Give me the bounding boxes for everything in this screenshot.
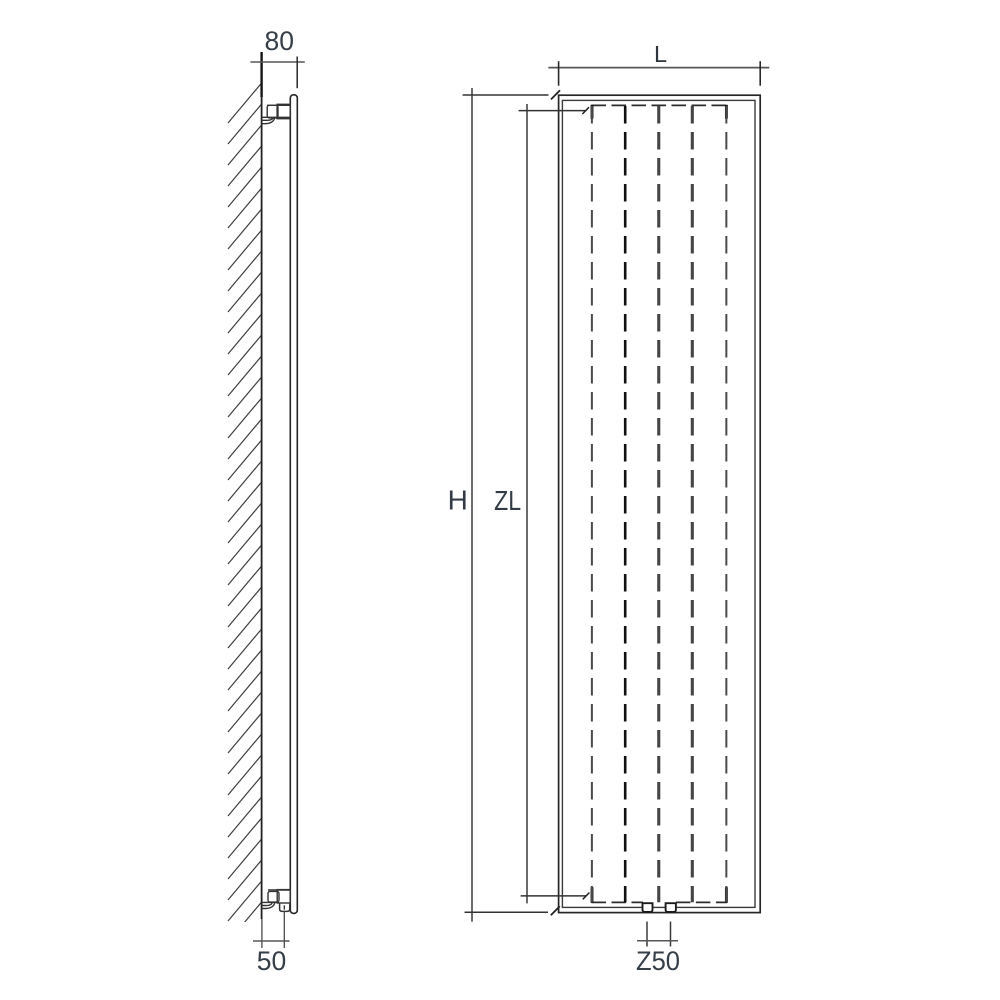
svg-text:Z50: Z50 <box>636 946 680 976</box>
svg-text:50: 50 <box>257 946 286 976</box>
svg-text:80: 80 <box>264 26 293 56</box>
svg-text:L: L <box>654 41 667 67</box>
svg-text:H: H <box>448 484 468 515</box>
svg-text:ZL: ZL <box>494 485 521 516</box>
